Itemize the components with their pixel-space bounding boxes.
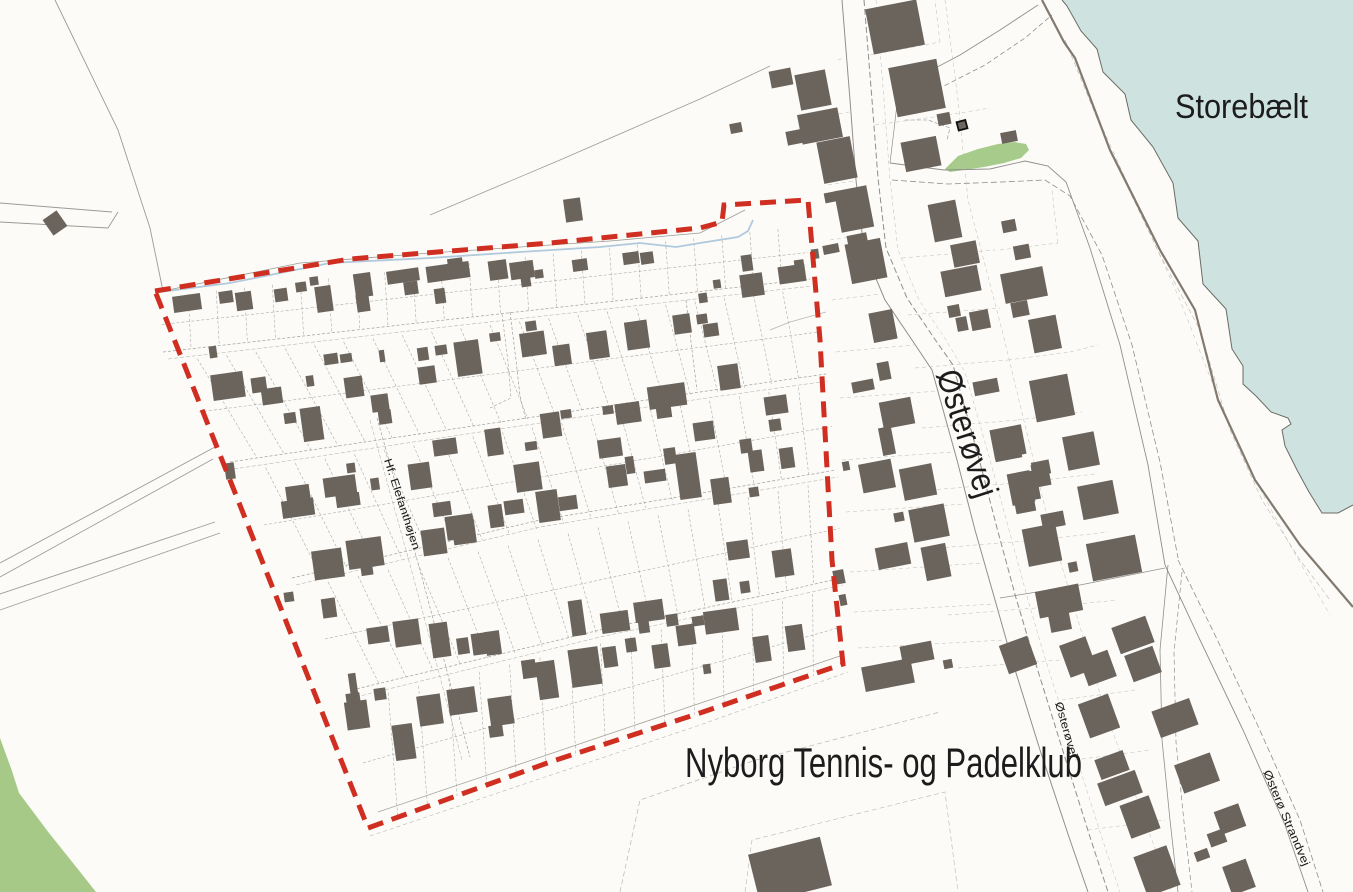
svg-text:Nyborg Tennis- og Padelklub: Nyborg Tennis- og Padelklub <box>685 739 1082 786</box>
svg-text:Storebælt: Storebælt <box>1175 88 1308 126</box>
